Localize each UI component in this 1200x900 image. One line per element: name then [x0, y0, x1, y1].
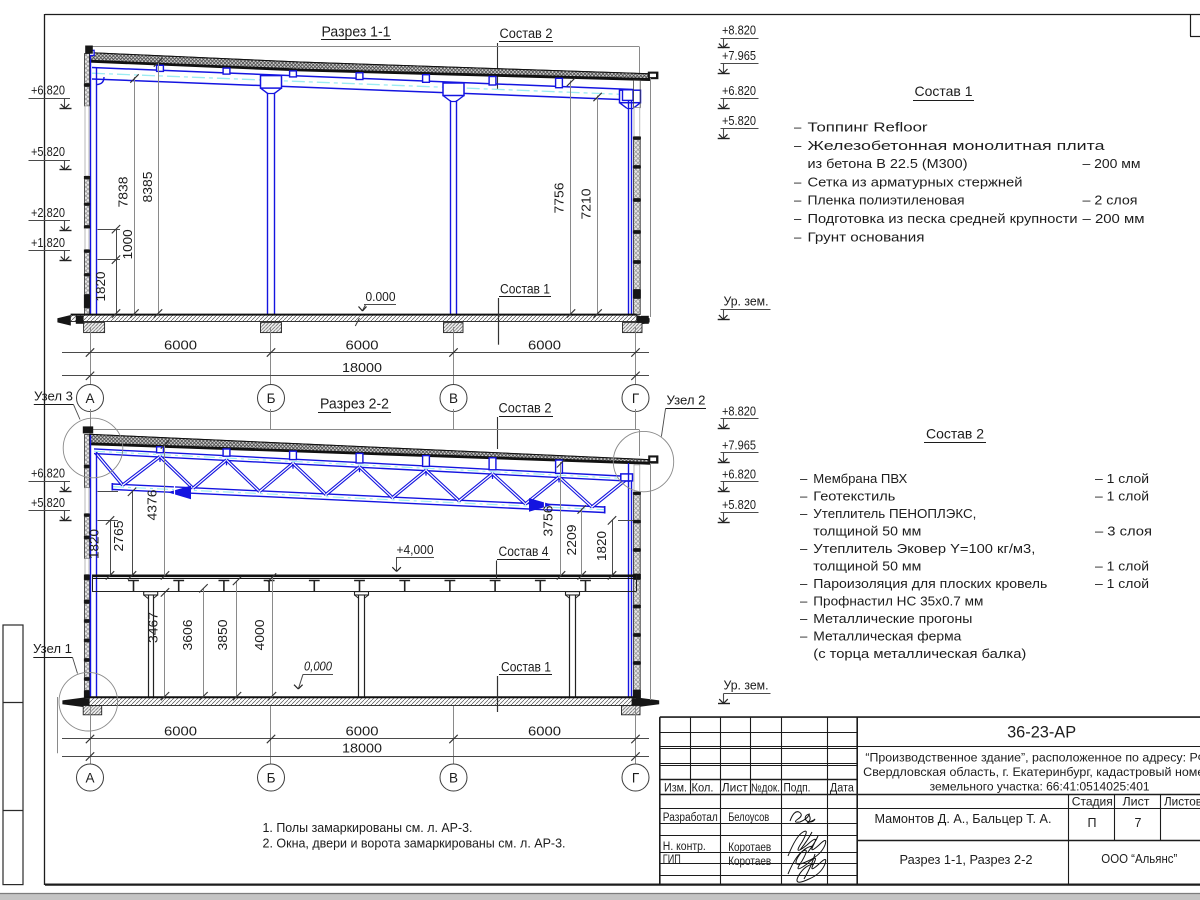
- svg-text:из бетона В 22.5 (М300): из бетона В 22.5 (М300): [808, 156, 968, 171]
- svg-text:36-23-АР: 36-23-АР: [1007, 723, 1076, 742]
- svg-text:+6.820: +6.820: [722, 84, 756, 98]
- svg-text:6000: 6000: [528, 724, 561, 739]
- svg-text:Узел 2: Узел 2: [667, 393, 706, 408]
- svg-text:– 1 слой: – 1 слой: [1095, 489, 1149, 504]
- svg-text:0,000: 0,000: [304, 660, 332, 674]
- svg-text:2765: 2765: [112, 520, 126, 551]
- svg-text:А: А: [85, 770, 94, 785]
- svg-text:Подп.: Подп.: [784, 783, 811, 795]
- svg-text:+5.820: +5.820: [722, 498, 756, 512]
- svg-text:–: –: [800, 506, 808, 521]
- svg-text:Листов: Листов: [1164, 794, 1200, 808]
- svg-text:Состав 1: Состав 1: [501, 660, 551, 675]
- svg-text:6000: 6000: [346, 724, 379, 739]
- svg-text:–: –: [800, 576, 808, 591]
- svg-text:– 200 мм: – 200 мм: [1083, 211, 1145, 226]
- svg-text:Г: Г: [632, 770, 640, 785]
- svg-text:3606: 3606: [181, 619, 195, 650]
- svg-text:–: –: [800, 594, 808, 609]
- svg-text:Коротаев: Коротаев: [728, 842, 771, 854]
- svg-text:Состав 1: Состав 1: [915, 83, 973, 99]
- svg-text:–: –: [800, 489, 808, 504]
- svg-text:Профнастил НС 35х0.7 мм: Профнастил НС 35х0.7 мм: [813, 594, 983, 609]
- svg-text:толщиной 50 мм: толщиной 50 мм: [813, 559, 921, 574]
- svg-text:Состав 1: Состав 1: [500, 282, 550, 297]
- svg-text:– 1 слой: – 1 слой: [1095, 471, 1149, 486]
- svg-text:Стадия: Стадия: [1072, 794, 1113, 808]
- svg-text:1000: 1000: [121, 229, 135, 259]
- svg-text:Мембрана ПВХ: Мембрана ПВХ: [813, 471, 907, 486]
- svg-text:Узел 3: Узел 3: [34, 389, 73, 404]
- svg-text:П: П: [1088, 816, 1097, 830]
- svg-text:+7.965: +7.965: [722, 49, 756, 63]
- svg-text:–: –: [800, 471, 808, 486]
- svg-text:4376: 4376: [146, 489, 160, 520]
- svg-text:Лист: Лист: [1123, 794, 1151, 808]
- svg-text:0.000: 0.000: [366, 290, 396, 304]
- svg-text:“Производственное здание”, рас: “Производственное здание”, расположенное…: [865, 751, 1200, 765]
- svg-text:Лист: Лист: [722, 783, 749, 795]
- svg-text:Пароизоляция для плоских крове: Пароизоляция для плоских кровель: [813, 576, 1047, 591]
- svg-text:Железобетонная монолитная пли: Железобетонная монолитная плита: [808, 138, 1106, 153]
- svg-text:Состав 2: Состав 2: [500, 26, 553, 41]
- svg-text:3467: 3467: [147, 612, 161, 643]
- svg-text:Мамонтов Д. А., Бальцер Т. А.: Мамонтов Д. А., Бальцер Т. А.: [875, 811, 1052, 826]
- svg-text:1820: 1820: [88, 529, 102, 559]
- svg-text:(с торца металлическая балка): (с торца металлическая балка): [813, 646, 1026, 661]
- svg-text:Разрез 1-1: Разрез 1-1: [322, 24, 391, 41]
- svg-text:Состав 2: Состав 2: [926, 426, 984, 442]
- svg-text:Подготовка из песка средней кр: Подготовка из песка средней крупности: [808, 211, 1078, 226]
- svg-text:–: –: [794, 174, 802, 189]
- svg-text:Коротаев: Коротаев: [728, 856, 771, 868]
- svg-text:18000: 18000: [342, 360, 382, 375]
- svg-text:–: –: [800, 541, 808, 556]
- svg-text:7756: 7756: [553, 182, 567, 213]
- svg-text:+5.820: +5.820: [722, 114, 756, 128]
- svg-text:6000: 6000: [164, 724, 197, 739]
- svg-text:+2.820: +2.820: [31, 206, 65, 220]
- svg-text:– 1 слой: – 1 слой: [1095, 576, 1149, 591]
- svg-text:В: В: [449, 391, 458, 406]
- svg-text:–: –: [794, 120, 802, 135]
- svg-text:6000: 6000: [346, 338, 379, 353]
- svg-text:4000: 4000: [253, 619, 267, 650]
- svg-text:Состав 2: Состав 2: [499, 401, 552, 416]
- svg-text:земельного участка: 66:41:0514: земельного участка: 66:41:0514025:401: [930, 780, 1150, 794]
- svg-text:Г: Г: [632, 391, 640, 406]
- svg-text:–: –: [794, 138, 802, 153]
- svg-text:Утеплитель Эковер Y=100 кг/м3,: Утеплитель Эковер Y=100 кг/м3,: [813, 541, 1035, 556]
- svg-text:– 200 мм: – 200 мм: [1083, 156, 1141, 171]
- svg-text:Узел 1: Узел 1: [33, 641, 72, 656]
- svg-text:Металлическая ферма: Металлическая ферма: [813, 629, 962, 644]
- svg-text:Утеплитель ПЕНОПЛЭКС,: Утеплитель ПЕНОПЛЭКС,: [813, 506, 976, 521]
- svg-text:Свердловская область, г. Екате: Свердловская область, г. Екатеринбург, к…: [863, 765, 1200, 779]
- svg-text:Дата: Дата: [830, 783, 855, 795]
- svg-text:1820: 1820: [595, 531, 609, 561]
- svg-text:Грунт основания: Грунт основания: [808, 229, 925, 244]
- svg-text:Состав 4: Состав 4: [499, 544, 549, 559]
- svg-text:Сетка из арматурных стержней: Сетка из арматурных стержней: [808, 174, 1023, 189]
- svg-text:ООО “Альянс”: ООО “Альянс”: [1101, 851, 1177, 866]
- svg-text:+5.820: +5.820: [31, 496, 65, 510]
- svg-text:+6.820: +6.820: [722, 468, 756, 482]
- svg-text:1. Полы замаркированы см. л. А: 1. Полы замаркированы см. л. АР-3.: [263, 820, 473, 835]
- svg-text:–: –: [800, 611, 808, 626]
- svg-text:+8.820: +8.820: [722, 405, 756, 419]
- svg-text:Разрез 2-2: Разрез 2-2: [320, 395, 389, 412]
- svg-text:3756: 3756: [542, 505, 556, 536]
- svg-text:+4,000: +4,000: [397, 543, 434, 557]
- svg-text:6000: 6000: [528, 338, 561, 353]
- svg-text:+8.820: +8.820: [722, 24, 756, 38]
- svg-text:1820: 1820: [94, 271, 108, 301]
- svg-text:2209: 2209: [565, 524, 579, 555]
- svg-text:+6.820: +6.820: [31, 467, 65, 481]
- svg-text:Белоусов: Белоусов: [728, 812, 769, 824]
- svg-text:Металлические прогоны: Металлические прогоны: [813, 611, 972, 626]
- svg-text:–: –: [794, 211, 802, 226]
- svg-text:Разработал: Разработал: [663, 812, 718, 824]
- svg-text:7838: 7838: [117, 176, 131, 207]
- svg-text:№док.: №док.: [751, 783, 780, 795]
- svg-text:7: 7: [1135, 816, 1142, 830]
- svg-text:8385: 8385: [141, 171, 155, 202]
- svg-text:2. Окна, двери и ворота замарк: 2. Окна, двери и ворота замаркированы см…: [263, 836, 566, 851]
- svg-text:Ур. зем.: Ур. зем.: [724, 295, 769, 309]
- svg-text:Б: Б: [267, 391, 276, 406]
- svg-text:Топпинг Refloor: Топпинг Refloor: [808, 120, 929, 135]
- svg-text:Пленка полиэтиленовая: Пленка полиэтиленовая: [808, 193, 965, 208]
- svg-text:18000: 18000: [342, 741, 382, 756]
- svg-text:–: –: [800, 629, 808, 644]
- svg-text:Изм.: Изм.: [664, 783, 687, 795]
- svg-text:+1.820: +1.820: [31, 236, 65, 250]
- svg-text:Ур. зем.: Ур. зем.: [724, 679, 769, 693]
- svg-text:+6.820: +6.820: [31, 84, 65, 98]
- svg-text:7210: 7210: [580, 188, 594, 219]
- svg-text:Геотекстиль: Геотекстиль: [813, 489, 895, 504]
- svg-text:– 3 слоя: – 3 слоя: [1095, 524, 1152, 539]
- svg-text:А: А: [85, 391, 94, 406]
- svg-text:–: –: [794, 193, 802, 208]
- svg-text:6000: 6000: [164, 338, 197, 353]
- svg-text:ГИП: ГИП: [663, 854, 681, 866]
- svg-text:+7.965: +7.965: [722, 439, 756, 453]
- svg-text:В: В: [449, 770, 458, 785]
- svg-text:–: –: [794, 229, 802, 244]
- svg-text:Кол.: Кол.: [692, 783, 714, 795]
- svg-text:Разрез 1-1, Разрез 2-2: Разрез 1-1, Разрез 2-2: [900, 852, 1033, 867]
- svg-text:3850: 3850: [216, 619, 230, 650]
- svg-text:Б: Б: [267, 770, 276, 785]
- svg-text:+5.820: +5.820: [31, 145, 65, 159]
- svg-text:– 1 слой: – 1 слой: [1095, 559, 1149, 574]
- svg-text:толщиной 50 мм: толщиной 50 мм: [813, 524, 921, 539]
- svg-text:Н. контр.: Н. контр.: [663, 841, 706, 853]
- svg-text:– 2 слоя: – 2 слоя: [1083, 193, 1138, 208]
